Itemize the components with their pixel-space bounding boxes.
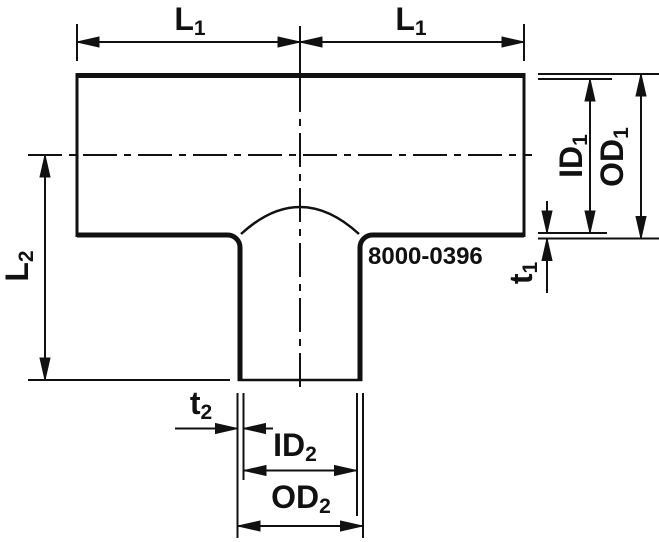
tee-technical-drawing: L1 L1 L2 ID1 OD1 t1 t2 ID2 OD2 8000-0396 bbox=[0, 0, 659, 542]
label-t1: t1 bbox=[503, 238, 539, 308]
l2-arrowhead-top bbox=[40, 155, 50, 177]
label-t2-sub: 2 bbox=[200, 401, 212, 424]
label-l2-base: L bbox=[0, 262, 35, 282]
label-id1-sub: 1 bbox=[569, 134, 592, 146]
label-od1: OD1 bbox=[594, 107, 630, 207]
dimension-l2 bbox=[28, 155, 230, 380]
label-od1-sub: 1 bbox=[610, 127, 633, 139]
id1-arrowhead-bottom bbox=[585, 211, 595, 233]
id2-arrowhead-left bbox=[244, 466, 266, 476]
od2-arrowhead-left bbox=[238, 521, 260, 531]
label-l1-right-sub: 1 bbox=[415, 17, 427, 40]
label-od2-base: OD bbox=[271, 479, 319, 515]
part-number: 8000-0396 bbox=[368, 245, 483, 269]
label-id2-sub: 2 bbox=[305, 443, 317, 466]
label-l1-left: L1 bbox=[145, 1, 235, 37]
label-od1-base: OD bbox=[594, 139, 630, 187]
label-l1-left-sub: 1 bbox=[194, 17, 206, 40]
l1-arrowhead-center-right bbox=[300, 37, 322, 47]
l1-arrowhead-center-left bbox=[278, 37, 300, 47]
label-l2-sub: 2 bbox=[15, 250, 38, 262]
label-t2-base: t bbox=[190, 385, 201, 421]
od2-arrowhead-right bbox=[341, 521, 363, 531]
od1-arrowhead-bottom bbox=[636, 217, 646, 239]
label-l1-left-base: L bbox=[174, 1, 194, 37]
label-od2: OD2 bbox=[246, 479, 356, 515]
label-l1-right: L1 bbox=[366, 1, 456, 37]
tee-bottom-left-and-branch-left-wall bbox=[77, 235, 240, 381]
dimension-t1 bbox=[542, 201, 552, 293]
label-l1-right-base: L bbox=[395, 1, 415, 37]
label-id1-base: ID bbox=[553, 146, 589, 178]
l2-arrowhead-bottom bbox=[40, 358, 50, 380]
label-id2: ID2 bbox=[245, 427, 345, 463]
label-l2: L2 bbox=[0, 221, 35, 311]
dimension-id2-od2 bbox=[238, 393, 364, 538]
l1-arrowhead-right bbox=[502, 37, 524, 47]
label-id1: ID1 bbox=[553, 111, 589, 201]
l1-arrowhead-left bbox=[77, 37, 99, 47]
label-id2-base: ID bbox=[273, 427, 305, 463]
id1-arrowhead-top bbox=[585, 79, 595, 101]
label-t1-base: t bbox=[503, 274, 539, 285]
label-t1-sub: 1 bbox=[519, 262, 542, 274]
t1-arrowhead-down bbox=[542, 211, 552, 233]
id2-arrowhead-right bbox=[335, 466, 357, 476]
od1-arrowhead-top bbox=[636, 74, 646, 96]
label-t2: t2 bbox=[161, 385, 241, 421]
label-od2-sub: 2 bbox=[319, 495, 331, 518]
t1-arrowhead-up bbox=[542, 239, 552, 261]
t2-arrowhead-right bbox=[216, 424, 238, 434]
